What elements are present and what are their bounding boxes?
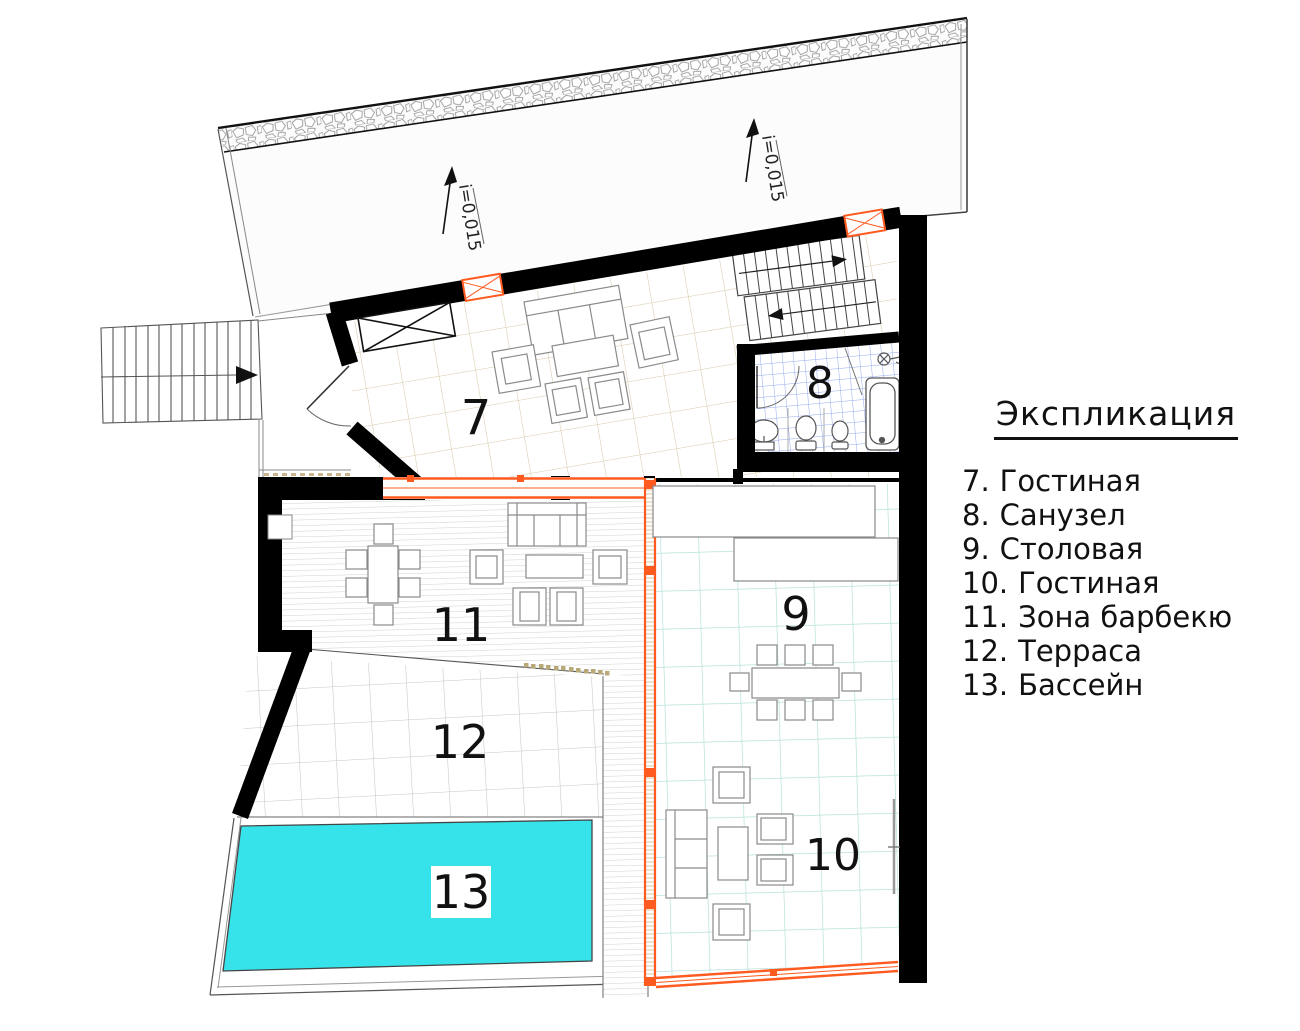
chair: [588, 372, 630, 416]
sofa: [666, 810, 707, 898]
room-label-8: 8: [806, 358, 834, 409]
dining-table: [368, 546, 398, 603]
legend-item-7: 7.Гостиная: [948, 464, 1284, 498]
armchair: [470, 550, 503, 584]
room-label-12: 12: [431, 715, 490, 769]
coffee-table: [718, 827, 748, 880]
armchair: [630, 317, 678, 368]
armchair: [757, 855, 793, 885]
bidet-icon: [832, 421, 848, 449]
legend-item-13: 13.Бассейн: [948, 668, 1284, 702]
room-label-11: 11: [432, 598, 491, 652]
sofa: [508, 503, 586, 546]
exterior-stairs: [101, 320, 262, 423]
legend-item-9: 9.Столовая: [948, 532, 1284, 566]
chair: [550, 588, 583, 625]
entrance-door: [307, 366, 351, 426]
chair: [513, 588, 546, 625]
legend-item-10: 10.Гостиная: [948, 566, 1284, 600]
wall-niche: [268, 515, 292, 539]
dining-table: [752, 668, 839, 698]
pool-side-deck-strip: [603, 676, 648, 998]
room-label-13: 13: [432, 865, 491, 919]
glazing-band-vertical: [644, 478, 656, 986]
floor-plan-page: i=0,015 i=0,015: [0, 0, 1300, 1031]
kitchen-island: [734, 538, 898, 581]
legend: Экспликация 7.Гостиная 8.Санузел 9.Столо…: [948, 394, 1284, 702]
chair: [713, 767, 750, 803]
legend-item-11: 11.Зона барбекю: [948, 600, 1284, 634]
room-label-7: 7: [461, 390, 492, 446]
legend-item-8: 8.Санузел: [948, 498, 1284, 532]
armchair: [593, 550, 627, 584]
threshold-dashes: [264, 473, 350, 476]
room-label-9: 9: [781, 587, 810, 641]
bathtub-icon: [866, 378, 899, 450]
armchair: [757, 814, 793, 844]
coffee-table: [526, 555, 583, 578]
legend-item-12: 12.Терраса: [948, 634, 1284, 668]
pool-13: [223, 820, 592, 971]
glazing-band-horizontal: [383, 475, 644, 499]
toilet-icon: [796, 416, 816, 450]
legend-list: 7.Гостиная 8.Санузел 9.Столовая 10.Гости…: [948, 464, 1284, 702]
armchair: [492, 345, 541, 394]
chair: [713, 904, 750, 940]
legend-title: Экспликация: [994, 394, 1238, 440]
chair: [545, 378, 587, 424]
kitchen-counter: [653, 486, 875, 537]
room-label-10: 10: [805, 830, 861, 881]
